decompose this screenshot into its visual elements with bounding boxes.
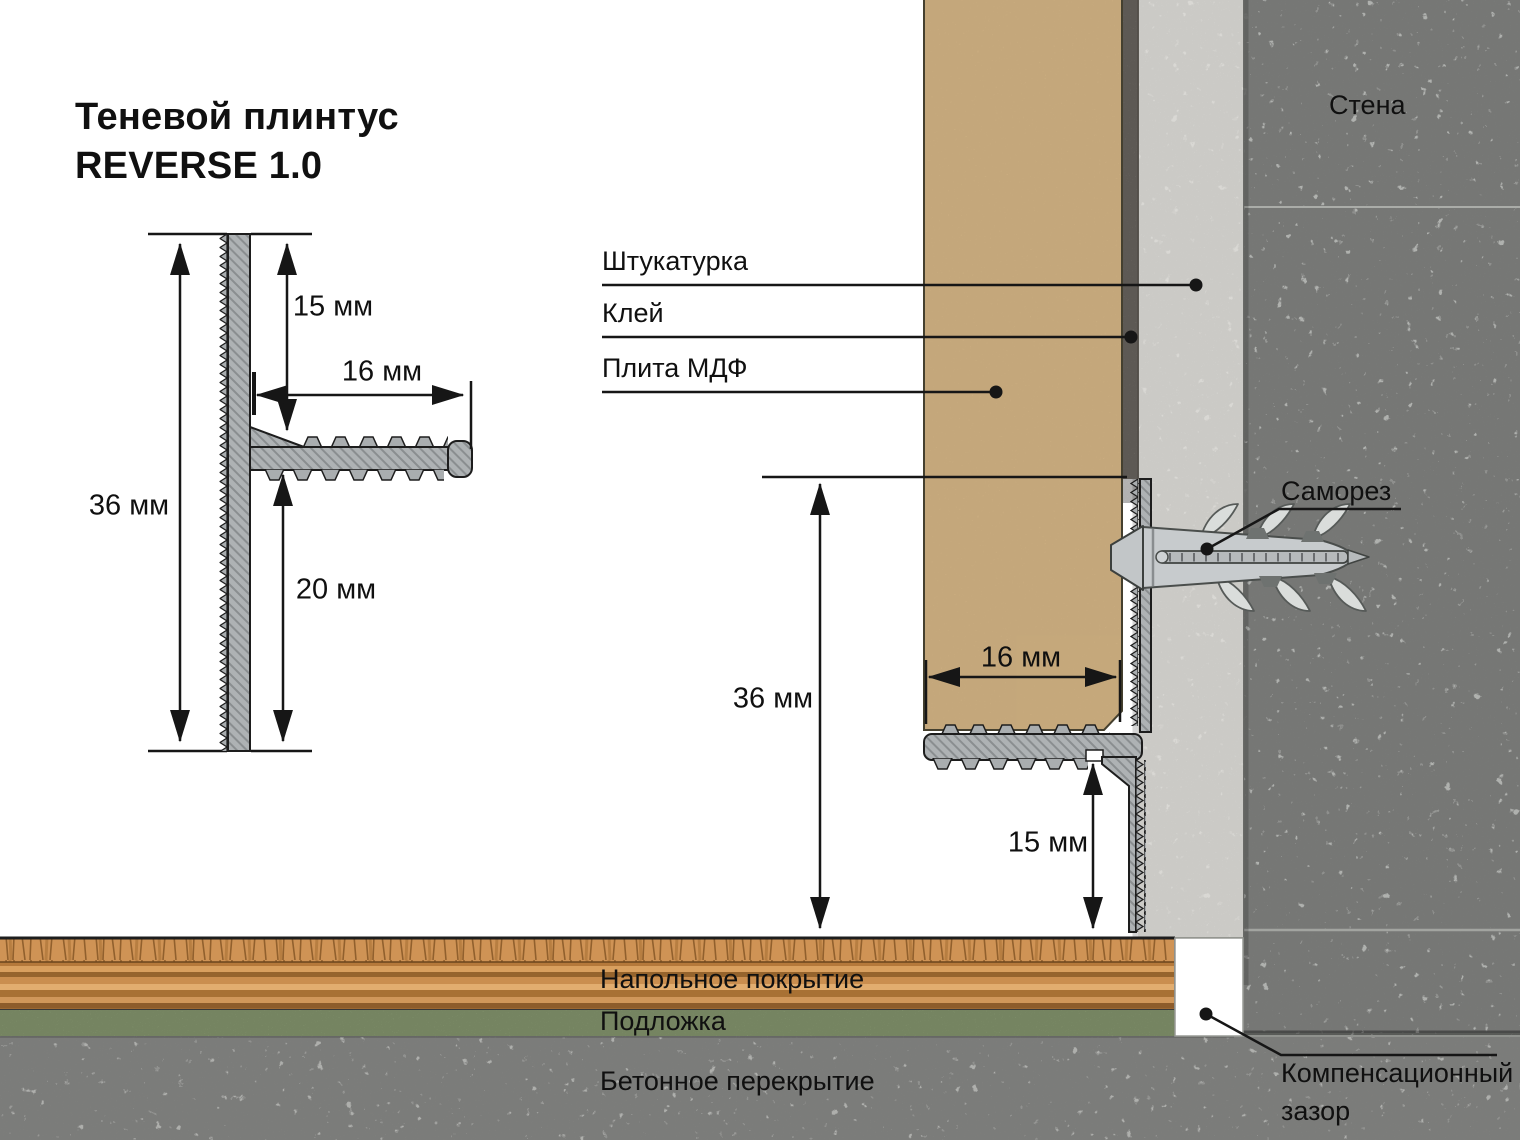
leader-dot-screw [1201,543,1214,556]
label-concrete-slab: Бетонное перекрытие [600,1066,875,1097]
diagram-page: Теневой плинтус REVERSE 1.0 36 мм 15 мм … [0,0,1520,1140]
page-title-line1: Теневой плинтус [75,96,399,140]
profile-gusset [250,427,304,447]
profile-arm-top-ribs [300,434,448,448]
profile-dim-total-height: 36 мм [89,489,169,522]
leader-dot-mdf [990,386,1003,399]
leader-dot-plaster [1190,279,1203,292]
label-compensation-gap-line2: зазор [1281,1096,1350,1127]
glue-layer [1122,0,1138,479]
label-floor-covering: Напольное покрытие [600,964,864,995]
profile-teeth-lower [1136,760,1146,932]
label-underlay: Подложка [600,1006,726,1037]
screw-shaft-end [1156,551,1168,563]
profile-dim-bottom-offset: 20 мм [296,573,376,606]
mdf-board [924,0,1122,730]
profile-arm-bottom-ribs [262,469,444,483]
profile-lower-strip [1102,757,1136,932]
underlay-layer [0,1010,1175,1036]
compensation-gap [1175,938,1243,1036]
profile-vertical-bar [228,234,250,751]
leader-dot-gap [1200,1008,1213,1021]
screw-thread [1166,553,1344,562]
label-compensation-gap-line1: Компенсационный [1281,1058,1513,1089]
profile-arm-end-cap [448,441,472,477]
label-wall: Стена [1329,90,1406,121]
install-dim-profile-height: 36 мм [733,682,813,715]
profile-clip-notch [1086,750,1103,761]
profile-dim-arm-length: 16 мм [342,355,422,388]
profile-dim-top-offset: 15 мм [293,290,373,323]
leader-dot-glue [1125,331,1138,344]
profile-teeth-upper [1130,479,1140,726]
install-dim-shadow-gap: 15 мм [1008,826,1088,859]
plaster-layer [1138,0,1243,938]
profile-arm-web [250,447,454,470]
label-plaster: Штукатурка [602,246,748,277]
label-glue: Клей [602,298,664,329]
label-screw: Саморез [1281,476,1391,507]
profile-upper-strip [1140,479,1151,732]
install-dim-mdf-thickness: 16 мм [981,641,1061,674]
label-mdf: Плита МДФ [602,353,748,384]
page-title-line2: REVERSE 1.0 [75,145,322,189]
profile-arm-bottom-ribs [930,758,1088,772]
